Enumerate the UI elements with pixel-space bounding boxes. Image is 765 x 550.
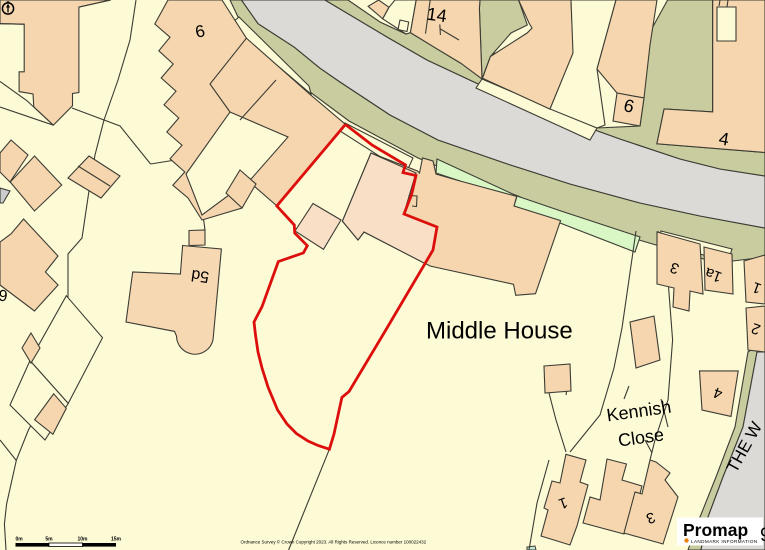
svg-text:6: 6 (0, 286, 8, 304)
svg-text:Promap: Promap (683, 520, 748, 540)
svg-text:9: 9 (760, 525, 765, 546)
svg-text:0m: 0m (16, 537, 24, 543)
svg-text:Middle House: Middle House (426, 318, 573, 345)
svg-text:5d: 5d (190, 266, 210, 285)
svg-text:LANDMARK INFORMATION: LANDMARK INFORMATION (691, 539, 758, 544)
svg-text:15m: 15m (111, 537, 122, 543)
svg-text:5m: 5m (45, 537, 53, 543)
svg-text:14: 14 (426, 4, 449, 27)
svg-text:Ordnance Survey © Crown Copyri: Ordnance Survey © Crown Copyright 2023. … (241, 539, 427, 545)
svg-text:10m: 10m (77, 537, 88, 543)
